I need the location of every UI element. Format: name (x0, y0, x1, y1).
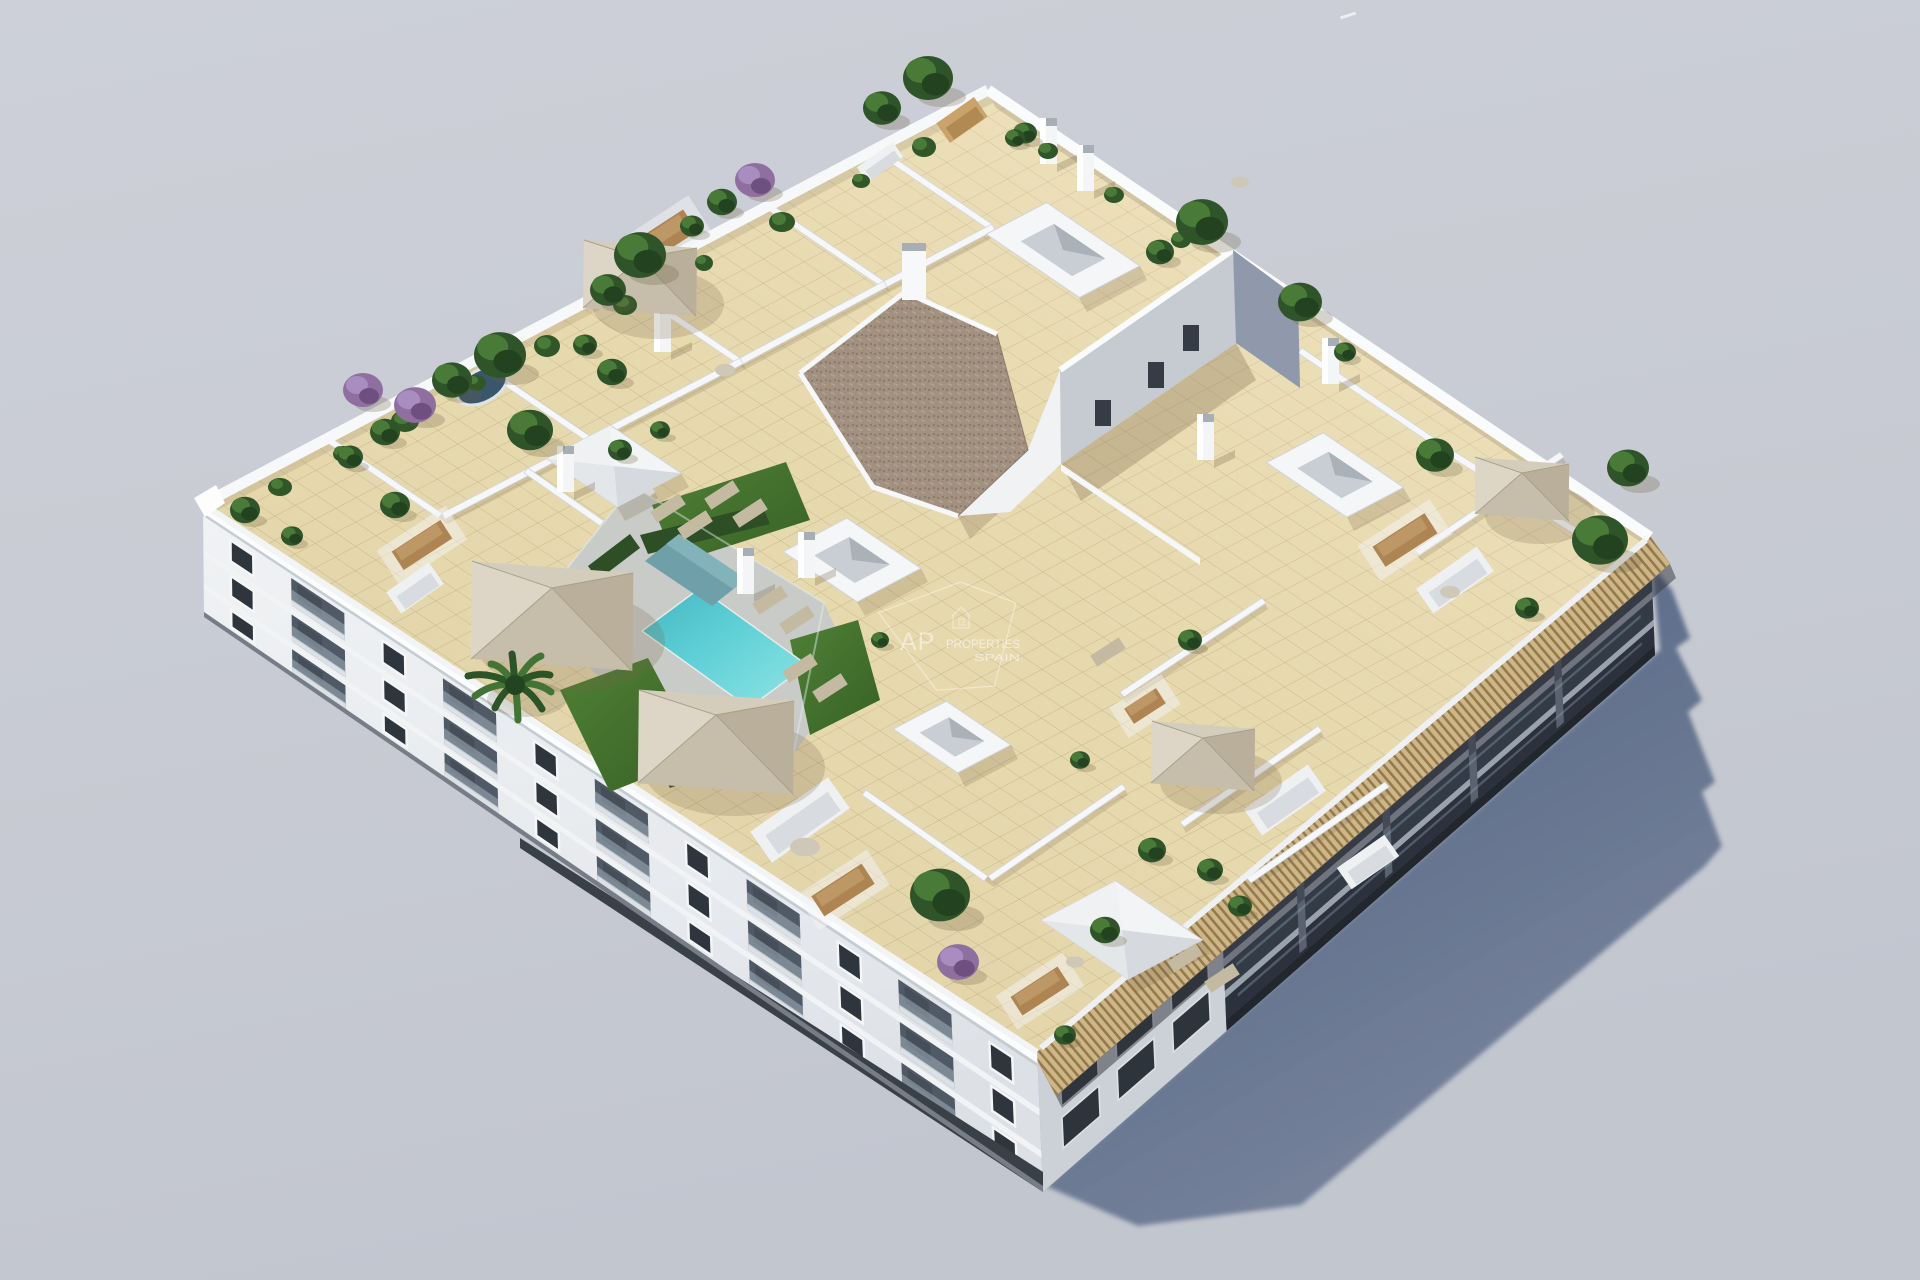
svg-text:PROPERTIES: PROPERTIES (946, 637, 1020, 651)
svg-text:SPAIN: SPAIN (974, 653, 1020, 664)
svg-text:AP: AP (900, 628, 935, 656)
